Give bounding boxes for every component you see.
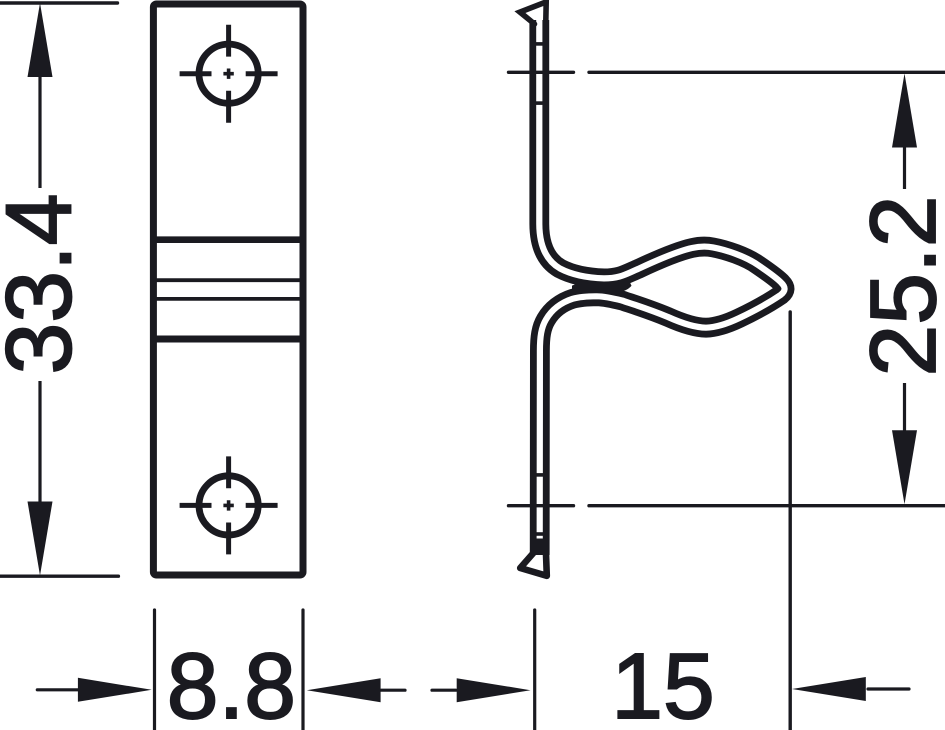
svg-text:25.2: 25.2	[851, 195, 945, 376]
svg-text:15: 15	[611, 634, 714, 730]
svg-text:33.4: 33.4	[0, 193, 90, 374]
svg-text:8.8: 8.8	[167, 634, 296, 730]
